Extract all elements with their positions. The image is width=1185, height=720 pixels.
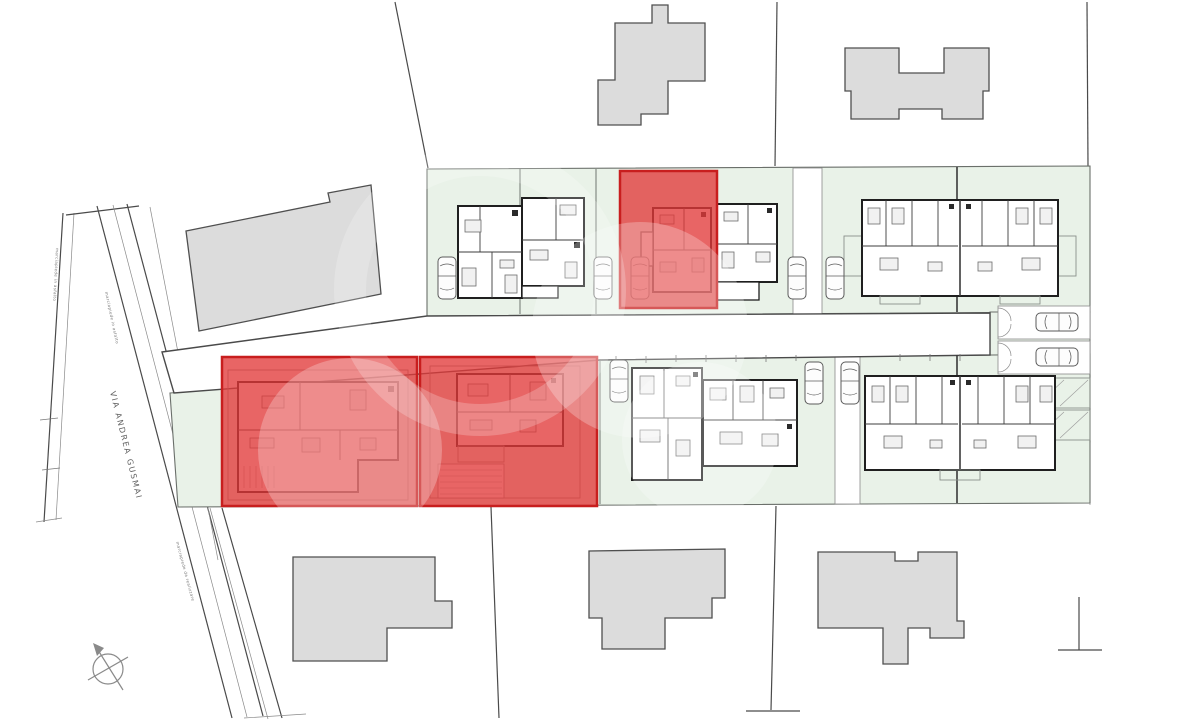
car-icon bbox=[438, 257, 456, 299]
neighbor-building-top-right bbox=[845, 48, 989, 119]
neighbor-building-bottom-left bbox=[293, 557, 452, 661]
car-icon bbox=[805, 362, 823, 404]
house-plan-top-duplex bbox=[844, 200, 1076, 304]
house-plan-bottom-duplex bbox=[865, 376, 1055, 480]
neighbor-building-bottom-center bbox=[589, 549, 725, 649]
car-icon bbox=[1036, 313, 1078, 331]
neighbor-building-top-center bbox=[598, 5, 705, 125]
sidewalk-annotation-lower: marciapiede da realizzare bbox=[175, 541, 196, 602]
sidewalk-annotation-upper: marciapiede in asfalto bbox=[104, 291, 120, 344]
street-label: VIA ANDREA GUSMAI bbox=[108, 390, 144, 500]
site-plan-svg: VIA ANDREA GUSMAI marciapiede in asfalto… bbox=[0, 0, 1185, 720]
compass-icon bbox=[88, 643, 128, 690]
car-icon bbox=[841, 362, 859, 404]
car-icon bbox=[788, 257, 806, 299]
car-icon bbox=[1036, 348, 1078, 366]
left-boundary-annotation: marciapiede in asfalto bbox=[52, 248, 60, 302]
site-plan-page: VIA ANDREA GUSMAI marciapiede in asfalto… bbox=[0, 0, 1185, 720]
car-icon bbox=[826, 257, 844, 299]
neighbor-building-bottom-right bbox=[818, 552, 964, 664]
